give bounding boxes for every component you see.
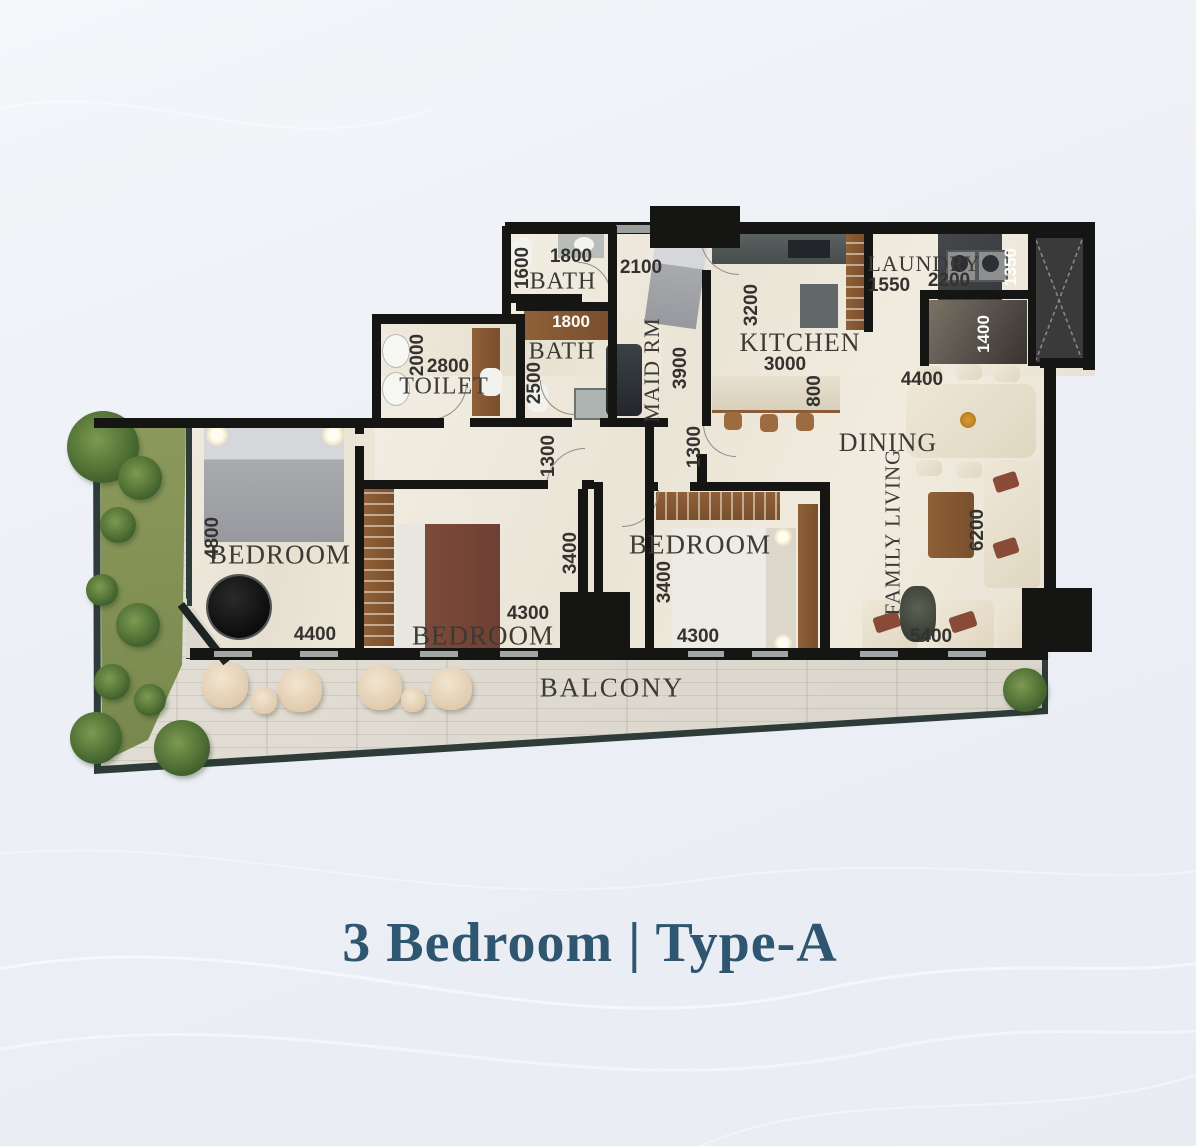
- wall: [690, 482, 830, 491]
- wall: [1044, 364, 1056, 604]
- palm-plant-icon: [134, 684, 166, 716]
- wall: [582, 480, 594, 489]
- dining-chair: [994, 366, 1020, 382]
- dim-kitchen-depth: 3200: [741, 284, 763, 326]
- dim-toilet-height: 2000: [407, 334, 429, 376]
- window-segment: [948, 651, 986, 657]
- room-label-family-living: FAMILY LIVING: [881, 449, 906, 616]
- palm-plant-icon: [94, 664, 130, 700]
- page-title: 3 Bedroom | Type-A: [342, 911, 837, 975]
- wall: [594, 482, 603, 598]
- entry-core-block: [650, 206, 740, 248]
- wall: [608, 226, 617, 426]
- dim-bath1-width: 1800: [550, 246, 592, 268]
- dim-bath2-height: 2500: [524, 362, 546, 404]
- window-segment: [500, 651, 538, 657]
- window-segment: [688, 651, 724, 657]
- wall: [920, 290, 929, 366]
- dim-living-length: 6200: [967, 509, 989, 551]
- dim-laundry-width: 1550: [868, 275, 910, 297]
- kitchen-stool: [796, 413, 814, 431]
- dim-corridor: 3400: [560, 532, 582, 574]
- balcony-chair: [358, 666, 402, 710]
- service-shaft: [1030, 234, 1088, 366]
- window-segment: [616, 225, 650, 233]
- dim-bedroom3-width: 4300: [677, 626, 719, 648]
- palm-plant-icon: [70, 712, 122, 764]
- balcony-chair: [430, 668, 472, 710]
- balcony-chair: [202, 662, 248, 708]
- window-segment: [300, 651, 338, 657]
- balcony-pouf: [251, 688, 277, 714]
- wall: [372, 314, 522, 324]
- bedroom1-round-table: [208, 576, 270, 638]
- wall-light-icon: [774, 528, 792, 546]
- dining-chair: [956, 462, 982, 478]
- dim-kitchen-island: 800: [804, 375, 826, 407]
- dim-toilet-width: 2800: [427, 356, 469, 378]
- dim-dining-width: 4400: [901, 369, 943, 391]
- balcony-chair: [278, 668, 322, 712]
- bath2-shower: [574, 388, 610, 420]
- dim-store-depth: 1400: [974, 315, 994, 353]
- wall: [645, 482, 658, 491]
- dim-kitchen-width: 3000: [764, 354, 806, 376]
- wall: [702, 270, 711, 426]
- window-segment: [860, 651, 898, 657]
- dim-maid-width: 2100: [620, 257, 662, 279]
- window-segment: [752, 651, 788, 657]
- wall: [1083, 222, 1095, 370]
- room-label-maid: MAID RM: [639, 317, 665, 422]
- palm-plant-icon: [100, 507, 136, 543]
- wall: [372, 314, 381, 426]
- wall: [505, 222, 1095, 234]
- room-label-bedroom1: BEDROOM: [209, 540, 351, 571]
- wall: [355, 446, 364, 658]
- window-segment: [420, 651, 458, 657]
- room-label-bedroom3: BEDROOM: [629, 530, 771, 561]
- dining-chair: [956, 364, 982, 380]
- wall: [470, 418, 572, 427]
- dim-foyer1: 1300: [538, 435, 560, 477]
- wall: [363, 480, 548, 489]
- bedroom2-wardrobe: [364, 488, 394, 646]
- palm-plant-icon: [1003, 668, 1047, 712]
- kitchen-pantry: [846, 228, 864, 330]
- dim-bedroom3-height: 3400: [654, 561, 676, 603]
- room-label-balcony: BALCONY: [540, 673, 685, 704]
- palm-plant-icon: [116, 603, 160, 647]
- floorplan-page: { "title": { "text": "3 Bedroom | Type-A…: [0, 0, 1196, 1146]
- kitchen-hob-icon: [788, 240, 830, 258]
- toilet-sink-icon: [382, 334, 410, 368]
- dim-bath2-width: 1800: [552, 312, 590, 332]
- window-segment: [214, 651, 252, 657]
- palm-plant-icon: [118, 456, 162, 500]
- wall: [516, 302, 616, 311]
- dim-bedroom1-width: 4400: [294, 624, 336, 646]
- palm-plant-icon: [154, 720, 210, 776]
- bedroom1-glass-wall: [187, 420, 192, 606]
- kitchen-stool: [760, 414, 778, 432]
- room-label-bedroom2: BEDROOM: [412, 621, 554, 652]
- bedroom3-tv-unit: [798, 504, 818, 650]
- dim-bedroom1-height: 4800: [202, 517, 224, 559]
- wall: [820, 482, 830, 658]
- dim-laundry-width2: 2200: [928, 270, 970, 292]
- dim-laundry-depth: 1350: [1001, 248, 1021, 286]
- wall: [502, 226, 511, 320]
- dryer-drum-icon: [982, 255, 999, 272]
- dim-maid-height: 3900: [670, 347, 692, 389]
- dim-foyer2: 1300: [684, 426, 706, 468]
- column-block: [1022, 588, 1092, 652]
- balcony-pouf: [401, 688, 425, 712]
- palm-plant-icon: [86, 574, 118, 606]
- column-block: [560, 592, 630, 658]
- kitchen-appliance-block: [800, 284, 838, 328]
- wall: [1028, 234, 1036, 366]
- wall: [355, 418, 364, 434]
- dining-chair: [916, 460, 942, 476]
- dim-bath1-height: 1600: [512, 247, 534, 289]
- wall: [702, 226, 711, 236]
- dim-living-width: 5400: [910, 626, 952, 648]
- dining-bowl-icon: [960, 412, 976, 428]
- room-label-bath1: BATH: [530, 269, 597, 296]
- bedroom3-wardrobe: [656, 492, 780, 520]
- dim-bedroom2-width: 4300: [507, 603, 549, 625]
- wall: [372, 418, 430, 427]
